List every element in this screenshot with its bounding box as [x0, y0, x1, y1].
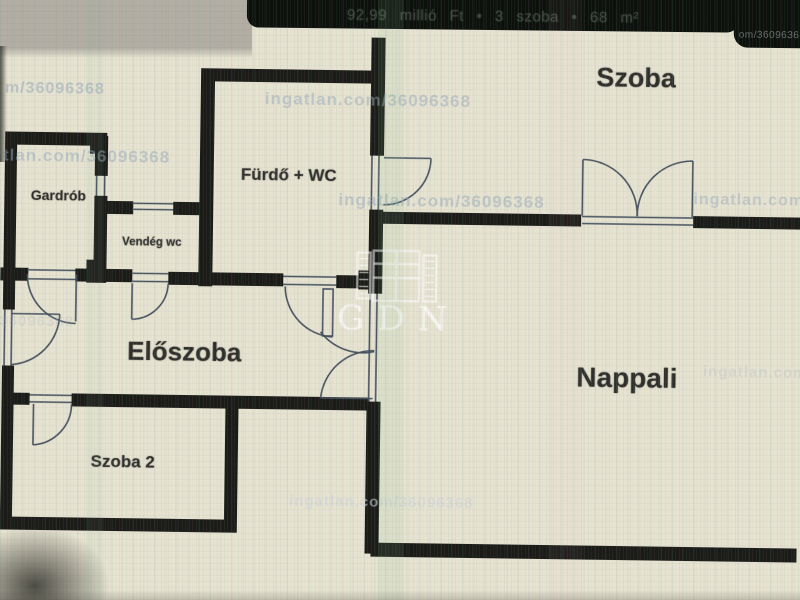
listing-price-text: 92,99 millió Ft • 3 szoba • 68 m² [347, 6, 639, 31]
watermark-text: ingatlan.com/36096368 [338, 190, 544, 213]
door-swing-arc [321, 350, 375, 399]
floorplan-photo: Szoba Fürdő + WC Gardrób Vendég wc Elősz… [0, 0, 800, 600]
watermark-text: ingatlan.com/36096368 [289, 492, 474, 512]
room-label-furdo-wc: Fürdő + WC [241, 165, 337, 186]
wall [364, 402, 380, 554]
watermark-text: ingatlan.com/36096368 [265, 89, 471, 112]
watermark-text: ingatlan.com/36096368 [0, 311, 74, 331]
wall [693, 216, 800, 230]
watermark-text: ingatlan.com/36096368 [703, 363, 800, 383]
wall [370, 543, 796, 563]
watermark-text: ingatlan.com/36096368 [0, 145, 170, 168]
corner-watermark-text: om/36096368 [739, 30, 800, 42]
door-swing-arc [637, 160, 693, 217]
door-frame [96, 176, 104, 196]
wall [173, 202, 203, 215]
photo-top-gray-band [0, 0, 252, 58]
watermark-text: ingatlan.com/36096368 [693, 191, 800, 212]
room-label-nappali: Nappali [576, 361, 678, 394]
door-frame [29, 395, 72, 446]
photo-corner-block: om/36096368 [734, 0, 800, 49]
wall [71, 393, 369, 410]
wall [2, 392, 30, 404]
photo-corner-shadow [0, 526, 110, 600]
walls-group [0, 32, 800, 562]
photo-left-edge-shadow [0, 46, 7, 162]
photo-bottom-shadow [0, 590, 800, 600]
door-frame [283, 276, 336, 285]
plan-layer: Szoba Fürdő + WC Gardrób Vendég wc Elősz… [0, 0, 800, 600]
door-swing-arc [284, 286, 333, 337]
room-label-vendeg-wc: Vendég wc [122, 236, 182, 249]
door-leaf [322, 289, 333, 336]
listing-price-bar: 92,99 millió Ft • 3 szoba • 68 m² [247, 0, 739, 33]
door-swing-arc [582, 160, 638, 217]
room-label-gardrob: Gardrób [31, 187, 86, 204]
gdn-logo-text: GDN [332, 298, 465, 340]
room-label-szoba-2: Szoba 2 [90, 452, 155, 473]
watermark-text: m/36096368 [5, 79, 105, 98]
wall [94, 201, 133, 215]
door-swing-arc [33, 404, 72, 446]
room-label-szoba: Szoba [596, 62, 676, 94]
wall [0, 365, 14, 529]
door-frame [131, 273, 169, 320]
wall [0, 267, 28, 280]
wall [224, 398, 239, 533]
door-swing-arc [132, 283, 168, 319]
wall [75, 268, 132, 282]
entry-door-symbol [132, 203, 173, 210]
wall [383, 212, 581, 227]
room-label-eloszoba: Előszoba [127, 336, 242, 369]
wall [168, 272, 283, 287]
wall [201, 68, 378, 83]
double-door-frame [582, 160, 694, 226]
wall [198, 68, 215, 286]
